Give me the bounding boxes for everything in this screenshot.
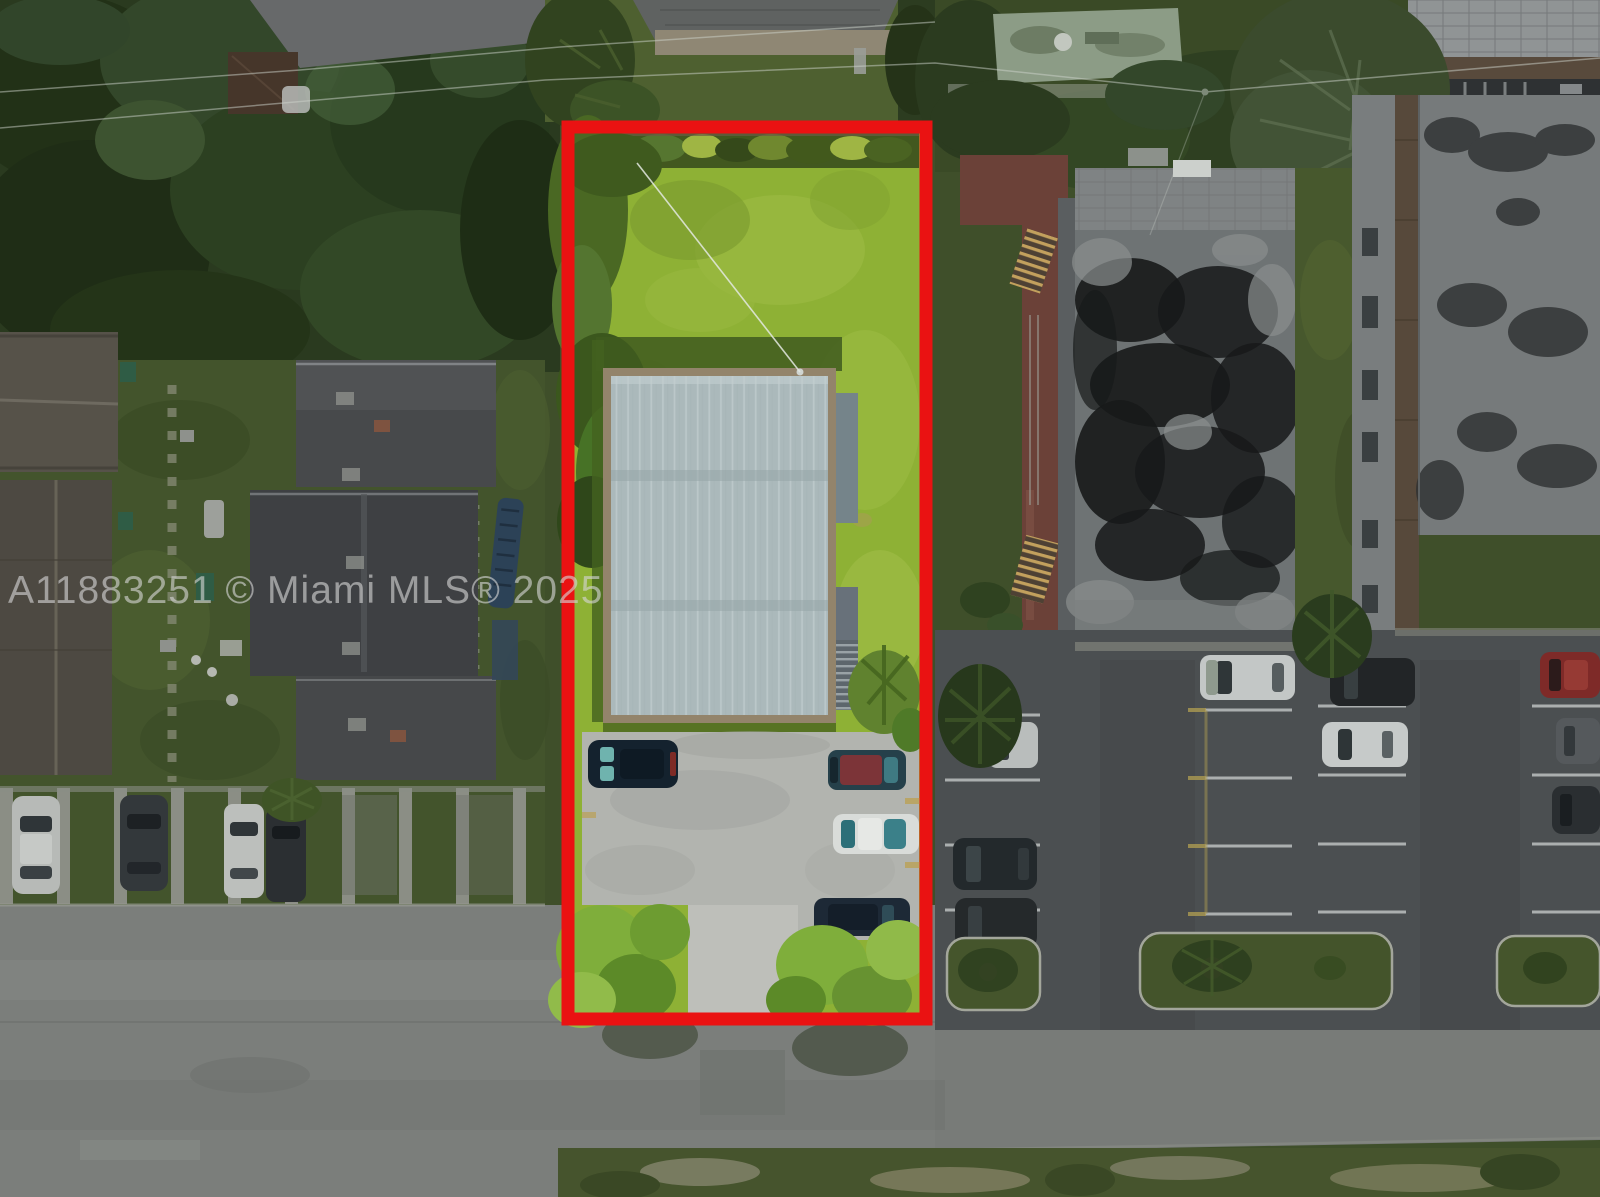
pavement-patch: [700, 1050, 785, 1115]
aerial-photo-canvas: A11883251 © Miami MLS® 2025: [0, 0, 1600, 1197]
mls-watermark: A11883251 © Miami MLS® 2025: [8, 569, 603, 612]
pad-car-white: [833, 814, 919, 854]
highlighted-property: [548, 115, 930, 1028]
lot-car-suv-dark-1: [953, 838, 1037, 890]
pad-car-maroon: [828, 750, 906, 790]
parked-car-dark-2: [266, 808, 306, 902]
building-shadow: [596, 337, 842, 371]
bottom-grass-strip: [558, 1148, 1600, 1197]
lot-car-white-2: [1322, 722, 1408, 767]
parked-car-shed: [282, 86, 310, 113]
parked-car-dark-1: [120, 795, 168, 891]
side-landing: [836, 587, 858, 640]
pad-car-teal-suv: [588, 740, 678, 788]
west-far-buildings: [0, 332, 118, 775]
property-building: [603, 368, 858, 732]
street-parking-row: [0, 778, 545, 906]
rooftop-unit: [1173, 160, 1211, 177]
parked-car-white-2: [224, 804, 264, 898]
aerial-photo: A11883251 © Miami MLS® 2025: [0, 0, 1600, 1197]
parked-car-white-1: [12, 796, 60, 894]
lot-car-red: [1540, 652, 1600, 698]
east-building: [1058, 148, 1302, 643]
side-porch: [836, 393, 858, 523]
lot-car-dark-2: [1552, 786, 1600, 834]
lot-car-gray: [1556, 718, 1600, 764]
palm-lot-left: [938, 664, 1022, 768]
lot-car-white-1: [1200, 655, 1295, 700]
